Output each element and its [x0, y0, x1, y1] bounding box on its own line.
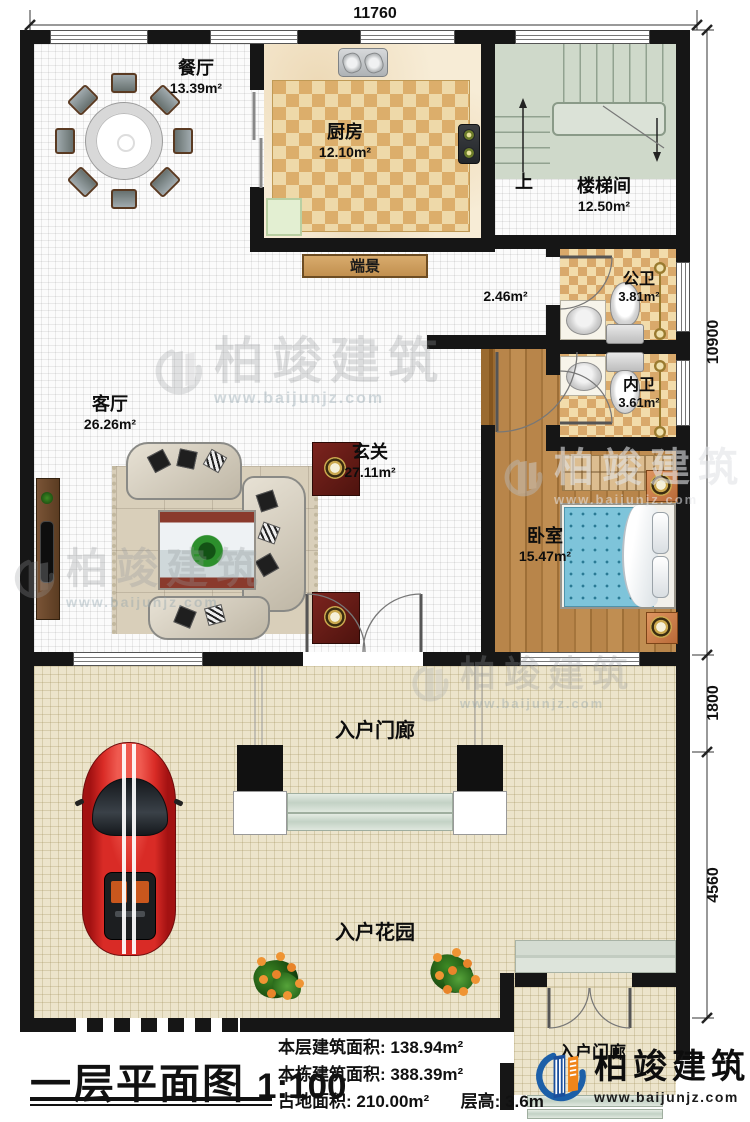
window-kitchen-north-1 [210, 30, 298, 44]
wall-kitchen-stair [481, 44, 495, 249]
dining-chair [111, 73, 137, 93]
room-area: 3.61m² [598, 395, 680, 411]
bedroom-floor-left [495, 349, 560, 652]
tv-cabinet-plant [41, 492, 53, 504]
dining-chair [55, 128, 75, 154]
wall-bath-left-1 [546, 249, 560, 257]
room-name: 客厅 [58, 394, 162, 416]
porch-column-base [453, 791, 507, 835]
room-label-public-bath: 公卫 3.81m² [598, 270, 680, 305]
car-stripe [122, 744, 136, 954]
window-dining-north [50, 30, 148, 44]
porch2-landing [515, 940, 676, 973]
wall-south-1 [20, 652, 73, 666]
room-label-kitchen: 厨房 12.10m² [300, 122, 390, 160]
porch-label: 入户门廊 [315, 714, 435, 743]
room-label-foyer: 玄关 27.11m² [318, 442, 422, 480]
plan-title: 一层平面图 [30, 1050, 245, 1110]
rail-knob-icon [654, 360, 666, 372]
sofa-pillow [176, 448, 197, 469]
porch-column [237, 745, 283, 791]
wall-right [676, 30, 690, 1060]
kitchen-stove [458, 124, 480, 164]
wall-bath-bottom [546, 437, 690, 451]
garden-plant [246, 948, 312, 1014]
porch2-steps [527, 1109, 663, 1119]
dimension-right-mid: 1800 [705, 657, 723, 749]
kitchen-appliance [266, 198, 302, 236]
dimension-top: 11760 [305, 5, 445, 23]
garden-label: 入户花园 [315, 916, 435, 945]
wall-left [20, 30, 34, 1032]
brand-name: 柏竣建筑 [594, 1048, 750, 1086]
area-stats: 本层建筑面积: 138.94m² 本栋建筑面积: 388.39m² 占地面积: … [278, 1034, 544, 1115]
stat-row: 占地面积: 210.00m² 层高: 3.6m [278, 1088, 544, 1115]
stat-label: 层高: [461, 1092, 501, 1111]
hall-area-label: 2.46m² [458, 288, 553, 304]
stair-upper-flight [548, 44, 676, 102]
sports-car [82, 742, 176, 956]
wall-porch2-left-1 [500, 973, 514, 1030]
wall-garden-bottom-2 [240, 1018, 515, 1032]
dining-chair [111, 189, 137, 209]
room-label-stair: 楼梯间 12.50m² [558, 176, 650, 214]
room-name: 楼梯间 [558, 176, 650, 198]
window-kitchen-north-2 [360, 30, 455, 44]
kitchen-sink [338, 48, 388, 77]
garden-plant [420, 942, 486, 1008]
window-bedroom-south [520, 652, 640, 666]
room-name: 餐厅 [158, 58, 234, 80]
porch-steps [287, 813, 453, 831]
wall-dining-kitchen-upper [250, 44, 264, 90]
room-name: 卧室 [500, 526, 590, 548]
room-area: 13.39m² [158, 80, 234, 97]
porch-steps [287, 793, 453, 813]
stat-value: 388.39m² [390, 1065, 463, 1084]
rail-knob-icon [654, 328, 666, 340]
bed-pillow [652, 512, 669, 554]
sink-basin-icon [566, 306, 602, 335]
rail-knob-icon [654, 426, 666, 438]
stat-value: 138.94m² [390, 1038, 463, 1057]
room-label-living: 客厅 26.26m² [58, 394, 162, 432]
wall-stair-bottom [495, 235, 690, 249]
wall-south-4 [640, 652, 690, 666]
stat-row: 本栋建筑面积: 388.39m² [278, 1061, 544, 1088]
stair-railing [552, 102, 666, 136]
dining-chair [173, 128, 193, 154]
room-area: 3.81m² [598, 289, 680, 305]
stair-lower-flight [495, 102, 550, 178]
dimension-right-lower: 4560 [705, 839, 723, 931]
bedroom-door-sill [481, 349, 495, 425]
sink-basin-icon [566, 362, 602, 391]
inner-bath-toilet-tank [606, 352, 644, 372]
wall-porch2-top-1 [515, 973, 547, 987]
porch-column-base [233, 791, 287, 835]
brand-url: www.baijunjz.com [594, 1089, 750, 1105]
wall-bedroom-left-lower [481, 425, 495, 666]
nightstand-lamp-icon [650, 616, 672, 638]
dimension-right-upper: 10900 [705, 296, 723, 388]
sink-basin-icon [362, 51, 385, 76]
room-label-bedroom: 卧室 15.47m² [500, 526, 590, 564]
stat-label: 占地面积: [278, 1092, 352, 1111]
wall-garden-bottom-1 [20, 1018, 60, 1032]
public-bath-toilet-tank [606, 324, 644, 344]
title-underline-thin [30, 1104, 272, 1106]
nightstand-lamp-icon [650, 474, 672, 496]
room-name: 公卫 [598, 270, 680, 289]
wall-bedroom-left-upper [481, 335, 495, 349]
bed-pillow [652, 556, 669, 598]
coffee-table-plant [186, 530, 228, 572]
tv-icon [41, 522, 53, 582]
stat-label: 本层建筑面积: [278, 1038, 386, 1057]
stat-label: 本栋建筑面积: [278, 1065, 386, 1084]
wall-kitchen-bottom [250, 238, 495, 252]
wall-garden-bottom-dashed [60, 1018, 240, 1032]
brand-logo-icon [530, 1046, 588, 1108]
room-label-dining: 餐厅 13.39m² [158, 58, 234, 96]
brand-logo: 柏竣建筑 www.baijunjz.com [530, 1046, 750, 1108]
floor-plan-page: 端景 [0, 0, 750, 1122]
wall-porch2-top-2 [632, 973, 676, 987]
table-lamp-icon [324, 606, 346, 628]
room-area: 27.11m² [318, 464, 422, 481]
window-stair-north [515, 30, 650, 44]
burner-icon [463, 147, 475, 159]
sink-basin-icon [340, 51, 363, 76]
room-name: 内卫 [598, 376, 680, 395]
console-table: 端景 [302, 254, 428, 278]
stat-value: 210.00m² [356, 1092, 429, 1111]
burner-icon [463, 129, 475, 141]
room-area: 12.10m² [300, 144, 390, 161]
wall-south-3 [423, 652, 520, 666]
porch-column [457, 745, 503, 791]
wall-south-2 [203, 652, 303, 666]
room-area: 15.47m² [500, 548, 590, 565]
room-name: 玄关 [318, 442, 422, 464]
stat-row: 本层建筑面积: 138.94m² [278, 1034, 544, 1061]
stair-up-label: 上 [512, 168, 536, 194]
window-living-south [73, 652, 203, 666]
console-label: 端景 [350, 258, 380, 275]
room-label-inner-bath: 内卫 3.61m² [598, 376, 680, 411]
room-area: 26.26m² [58, 416, 162, 433]
room-name: 厨房 [300, 122, 390, 144]
title-underline [30, 1097, 272, 1101]
dining-table-center [117, 134, 135, 152]
room-area: 12.50m² [558, 198, 650, 215]
